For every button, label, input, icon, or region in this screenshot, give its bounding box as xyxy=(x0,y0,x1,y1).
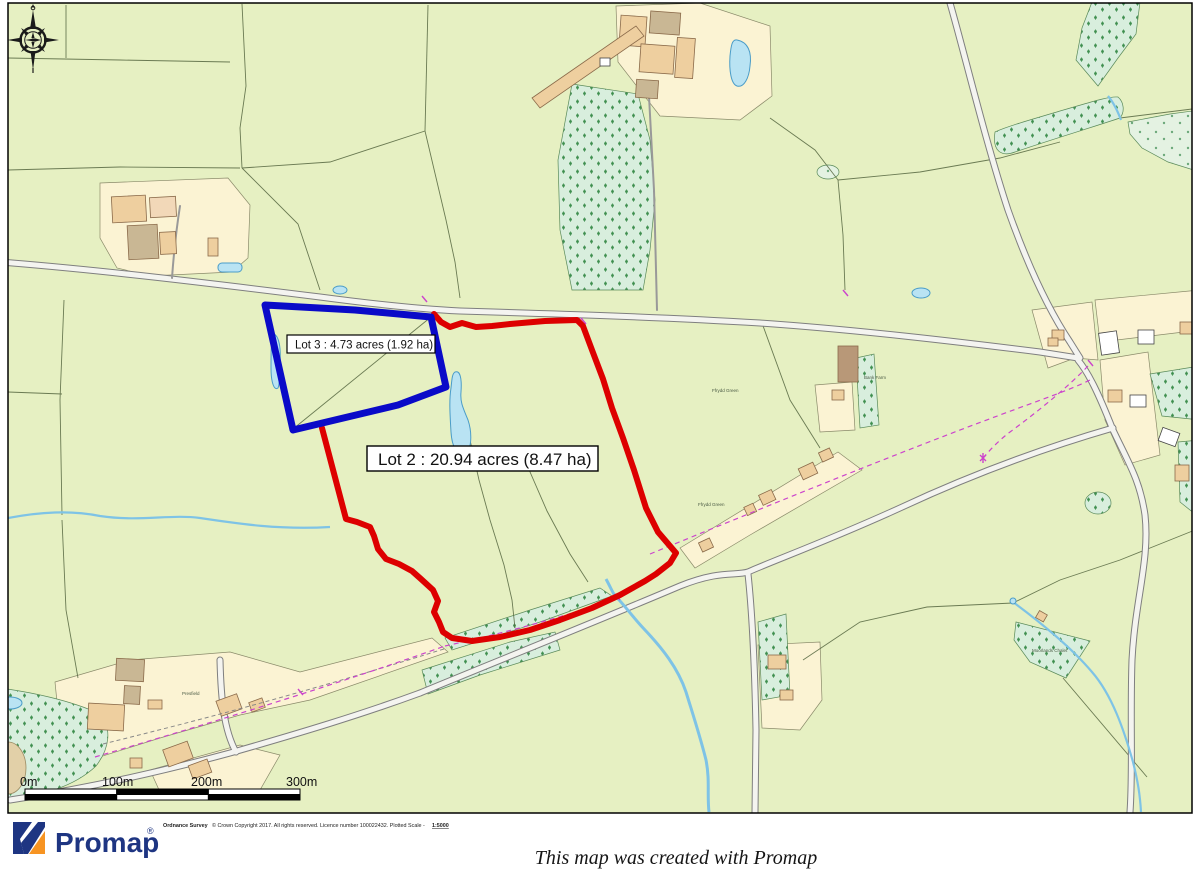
copyright-line: Ordnance Survey © Crown Copyright 2017. … xyxy=(163,822,449,829)
scale-label-100: 100m xyxy=(102,775,133,789)
lot2-label: Lot 2 : 20.94 acres (8.47 ha) xyxy=(367,446,598,471)
lot3-label-text: Lot 3 : 4.73 acres (1.92 ha) xyxy=(295,340,433,352)
promap-map-page: Presfield Bank Farm Ffrydd Green Ffrydd … xyxy=(0,0,1200,875)
lot3-label: Lot 3 : 4.73 acres (1.92 ha) xyxy=(287,335,435,353)
lot2-label-text: Lot 2 : 20.94 acres (8.47 ha) xyxy=(378,450,592,469)
promap-logo: Promap ® xyxy=(12,821,159,858)
moorlands-label: Moorlands Chalet xyxy=(1032,648,1068,653)
footer-tagline: This map was created with Promap xyxy=(535,847,817,869)
copyright-os: Ordnance Survey xyxy=(163,823,208,829)
scale-label-300: 300m xyxy=(286,775,317,789)
scale-label-200: 200m xyxy=(191,775,222,789)
ffrydd-green-upper-label: Ffrydd Green xyxy=(712,388,739,393)
ffrydd-green-lower-label: Ffrydd Green xyxy=(698,502,725,507)
copyright-text: © Crown Copyright 2017. All rights reser… xyxy=(212,822,425,829)
map-content: Presfield Bank Farm Ffrydd Green Ffrydd … xyxy=(0,2,1200,813)
copyright-scale: 1:5000 xyxy=(432,823,449,829)
promap-logo-icon xyxy=(12,821,46,855)
promap-logo-reg: ® xyxy=(147,826,154,836)
promap-logo-text: Promap xyxy=(55,827,159,858)
map-canvas: Presfield Bank Farm Ffrydd Green Ffrydd … xyxy=(0,0,1200,875)
presfield-label: Presfield xyxy=(182,691,200,696)
bank-farm-label: Bank Farm xyxy=(864,375,886,380)
scale-label-0: 0m xyxy=(20,775,37,789)
